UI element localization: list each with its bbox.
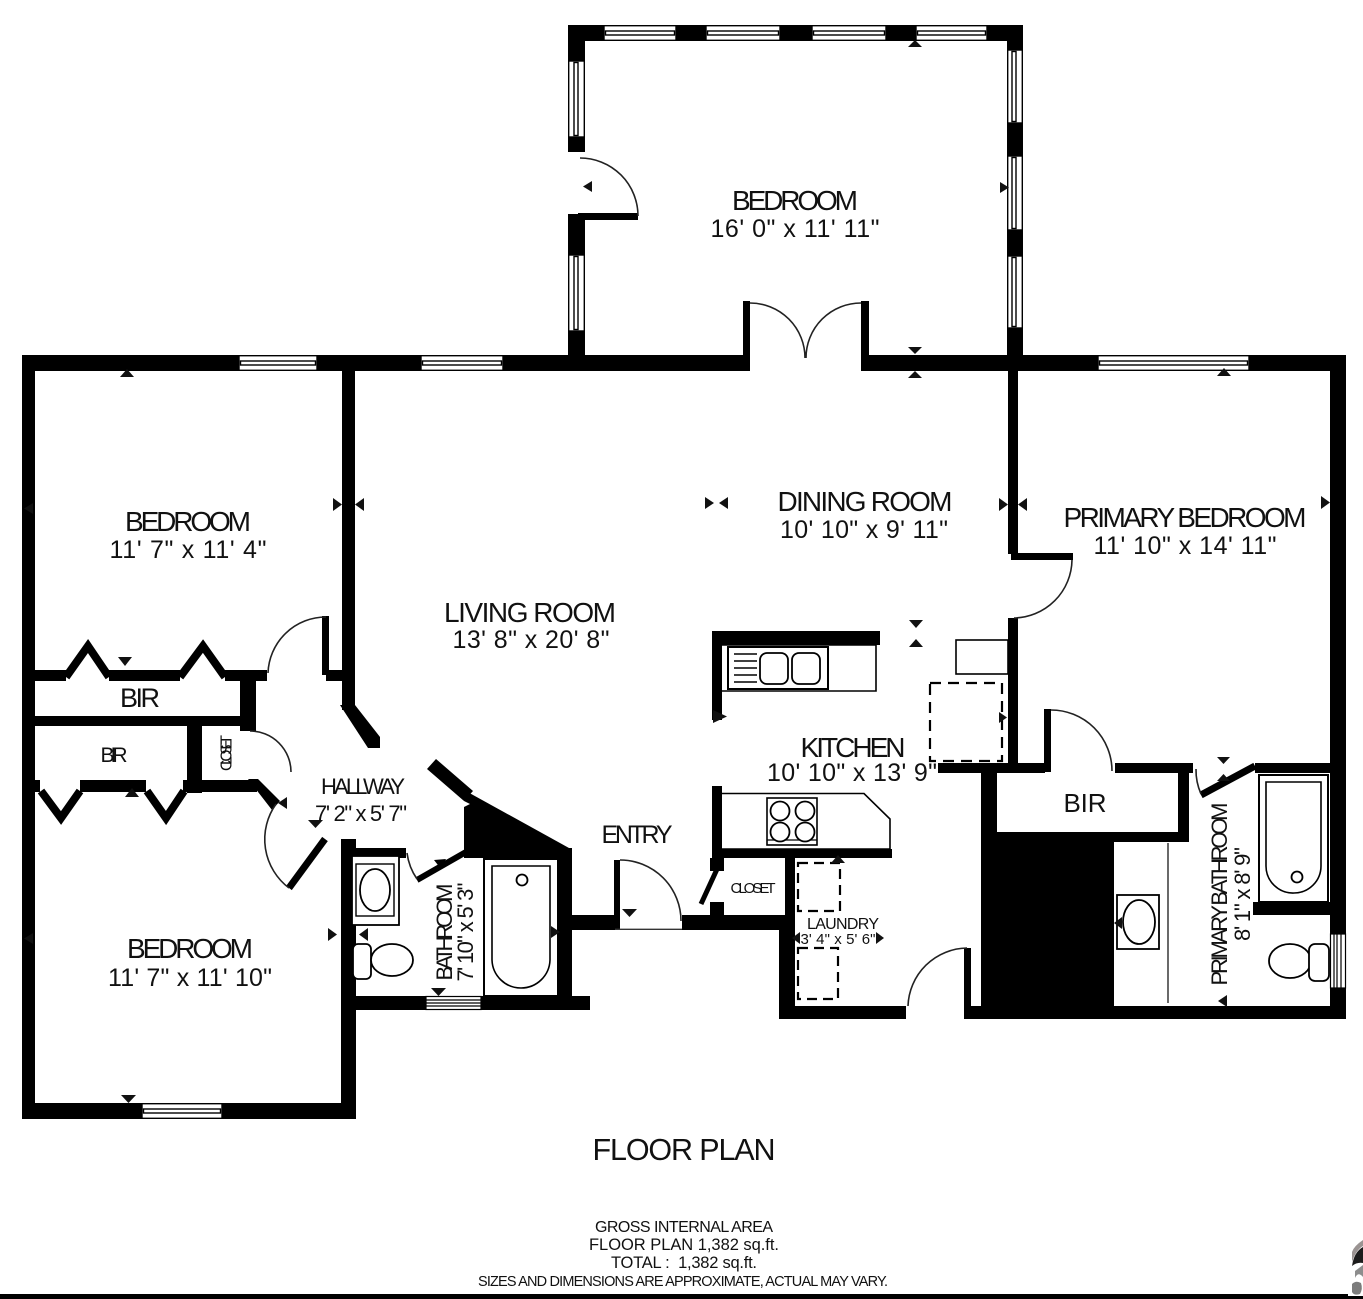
svg-text:11' 7" x 11' 4": 11' 7" x 11' 4": [110, 536, 267, 564]
svg-text:FLOOR PLAN 1,382 sq.ft.: FLOOR PLAN 1,382 sq.ft.: [589, 1236, 779, 1254]
svg-text:16' 0" x 11' 11": 16' 0" x 11' 11": [711, 215, 880, 243]
svg-text:10' 10" x 9' 11": 10' 10" x 9' 11": [780, 516, 948, 544]
svg-text:13' 8" x 20' 8": 13' 8" x 20' 8": [453, 626, 610, 654]
svg-text:3' 4" x 5' 6": 3' 4" x 5' 6": [801, 931, 876, 948]
svg-text:LIVING ROOM: LIVING ROOM: [444, 597, 616, 628]
svg-text:PRIMARY BEDROOM: PRIMARY BEDROOM: [1064, 502, 1307, 533]
svg-text:ENTRY: ENTRY: [602, 821, 673, 849]
svg-text:PRIMARY BATHROOM: PRIMARY BATHROOM: [1207, 803, 1232, 986]
svg-text:GROSS INTERNAL AREA: GROSS INTERNAL AREA: [595, 1219, 773, 1236]
svg-text:BIR: BIR: [120, 683, 160, 713]
svg-text:CLOSET: CLOSET: [731, 880, 776, 897]
svg-text:BIR: BIR: [1064, 788, 1107, 818]
svg-text:SIZES AND DIMENSIONS ARE APPRO: SIZES AND DIMENSIONS ARE APPROXIMATE, AC…: [478, 1274, 888, 1290]
svg-text:BIR: BIR: [101, 744, 128, 767]
svg-text:DINING ROOM: DINING ROOM: [778, 486, 953, 517]
svg-text:10' 10" x 13' 9": 10' 10" x 13' 9": [767, 759, 937, 787]
svg-text:TOTAL : 1,382 sq.ft.: TOTAL : 1,382 sq.ft.: [611, 1254, 757, 1272]
svg-text:BEDROOM: BEDROOM: [732, 185, 858, 216]
svg-text:HALLWAY: HALLWAY: [321, 774, 405, 799]
svg-text:FLOOR PLAN: FLOOR PLAN: [593, 1133, 776, 1167]
svg-text:BEDROOM: BEDROOM: [127, 933, 253, 964]
svg-text:BEDROOM: BEDROOM: [125, 506, 251, 537]
svg-text:8' 1" x 8' 9": 8' 1" x 8' 9": [1230, 847, 1255, 941]
svg-text:11' 7" x 11' 10": 11' 7" x 11' 10": [108, 964, 272, 992]
svg-text:11' 10" x 14' 11": 11' 10" x 14' 11": [1094, 532, 1277, 560]
svg-text:CLOSET: CLOSET: [219, 734, 236, 771]
svg-text:7' 10" x 5' 3": 7' 10" x 5' 3": [453, 883, 478, 982]
svg-text:7' 2" x 5' 7": 7' 2" x 5' 7": [315, 801, 407, 826]
